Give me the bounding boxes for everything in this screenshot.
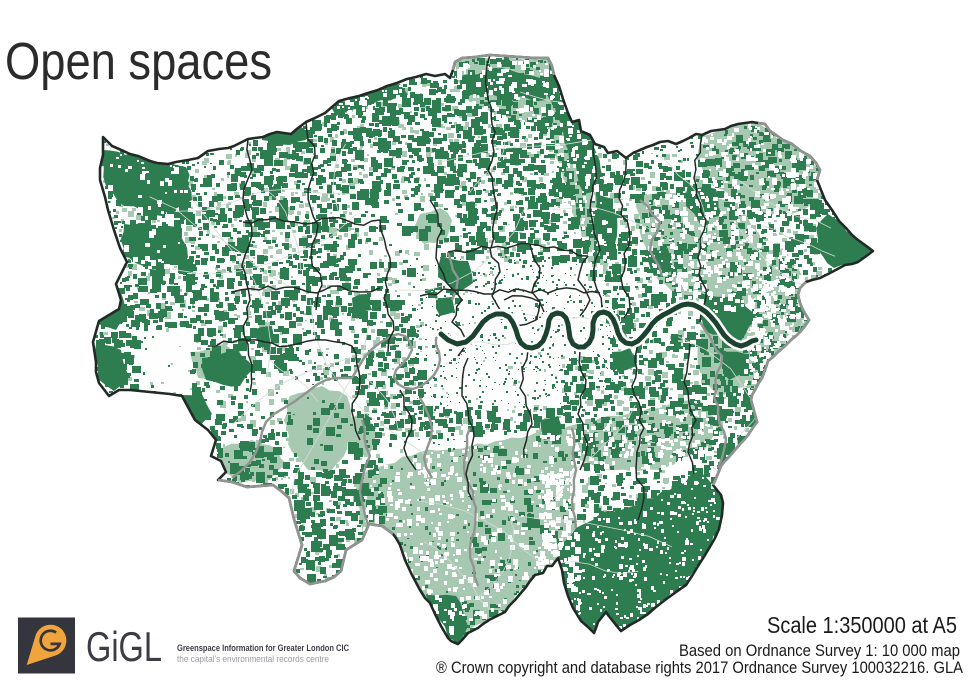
svg-text:Open spaces: Open spaces [5, 33, 272, 91]
svg-text:GiGL: GiGL [86, 623, 162, 670]
svg-text:® Crown copyright and database: ® Crown copyright and database rights 20… [436, 658, 964, 677]
svg-text:Greenspace Information for Gre: Greenspace Information for Greater Londo… [177, 643, 349, 654]
svg-text:the capital's environmental re: the capital's environmental records cent… [177, 654, 329, 665]
svg-text:Scale 1:350000 at A5: Scale 1:350000 at A5 [767, 612, 957, 638]
